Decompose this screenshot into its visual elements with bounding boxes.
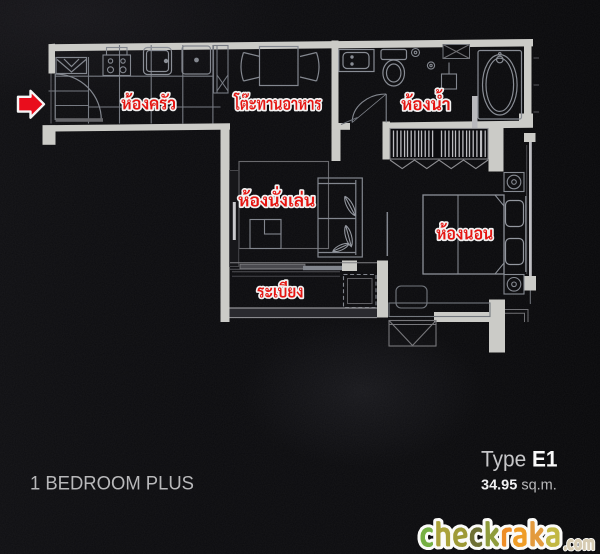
svg-text:1 BEDROOM PLUS: 1 BEDROOM PLUS <box>30 473 194 495</box>
svg-text:Type E1: Type E1 <box>481 447 558 472</box>
svg-text:34.95 sq.m.: 34.95 sq.m. <box>481 478 557 494</box>
